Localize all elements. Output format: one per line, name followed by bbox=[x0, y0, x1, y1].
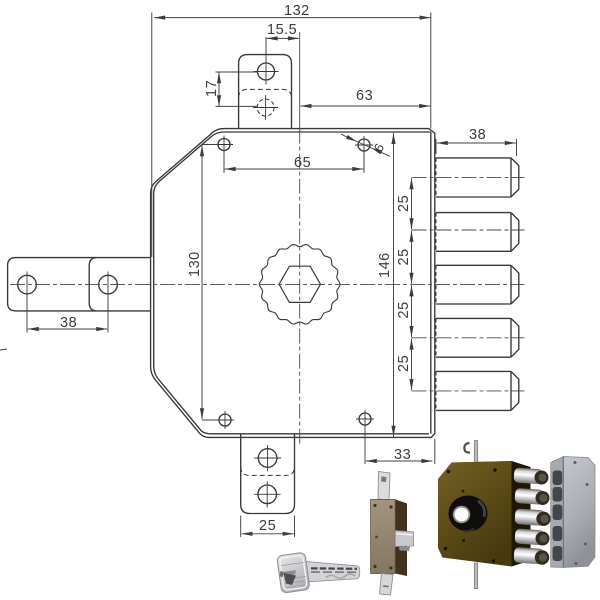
svg-text:25: 25 bbox=[396, 248, 412, 265]
svg-text:38: 38 bbox=[60, 315, 77, 331]
svg-text:17: 17 bbox=[204, 80, 220, 97]
svg-text:15.5: 15.5 bbox=[267, 22, 297, 38]
svg-text:33: 33 bbox=[394, 447, 411, 463]
svg-text:25: 25 bbox=[396, 301, 412, 318]
svg-text:25: 25 bbox=[259, 518, 276, 534]
svg-text:132: 132 bbox=[284, 3, 310, 19]
svg-text:25: 25 bbox=[396, 195, 412, 212]
svg-text:65: 65 bbox=[294, 155, 311, 171]
svg-text:146: 146 bbox=[377, 252, 393, 278]
svg-text:63: 63 bbox=[356, 88, 373, 104]
svg-text:130: 130 bbox=[187, 251, 203, 277]
svg-text:25: 25 bbox=[396, 355, 412, 372]
svg-text:38: 38 bbox=[469, 127, 486, 143]
